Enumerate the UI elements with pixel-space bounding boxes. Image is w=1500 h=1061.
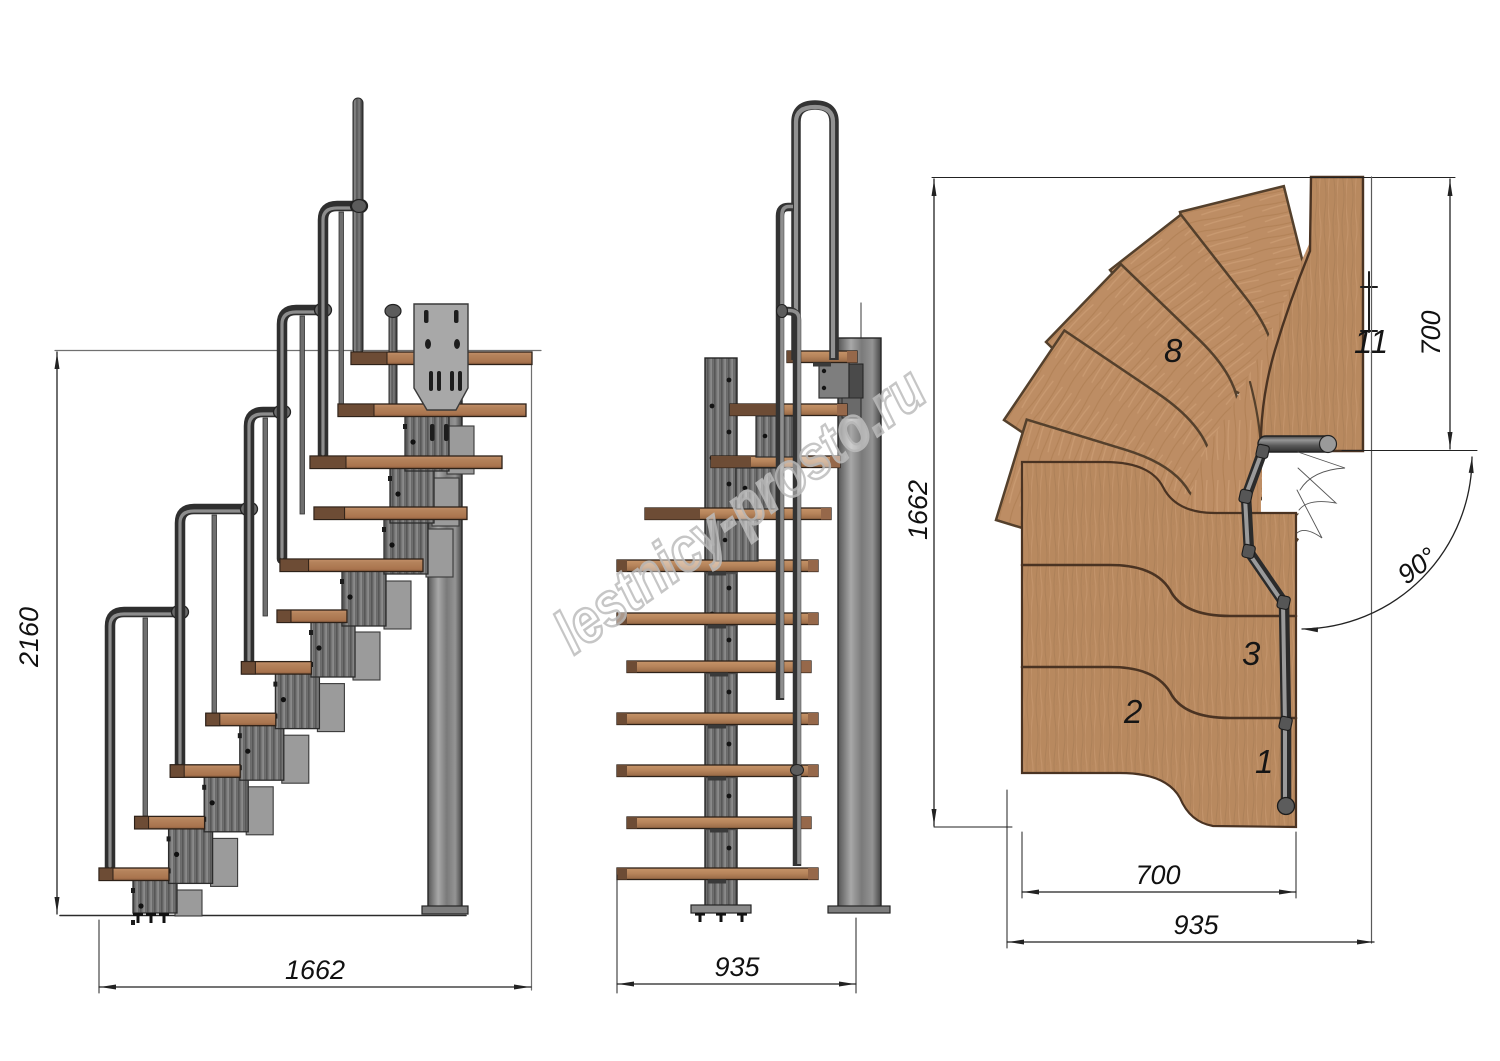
svg-text:1662: 1662 bbox=[285, 955, 345, 985]
svg-text:935: 935 bbox=[1173, 910, 1219, 940]
svg-text:1: 1 bbox=[1255, 743, 1273, 780]
svg-text:3: 3 bbox=[1242, 635, 1261, 672]
svg-text:2: 2 bbox=[1123, 693, 1142, 730]
svg-text:700: 700 bbox=[1135, 860, 1180, 890]
svg-text:8: 8 bbox=[1164, 332, 1183, 369]
svg-text:2160: 2160 bbox=[14, 607, 44, 668]
svg-text:700: 700 bbox=[1416, 310, 1446, 355]
svg-text:935: 935 bbox=[714, 952, 760, 982]
svg-text:1662: 1662 bbox=[903, 480, 933, 540]
